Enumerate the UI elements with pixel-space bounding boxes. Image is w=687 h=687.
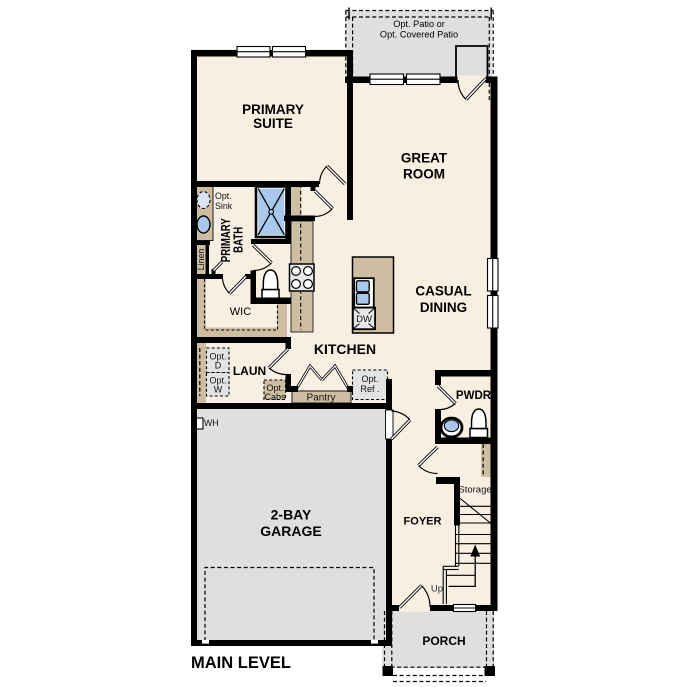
svg-text:Opt.: Opt. (215, 191, 232, 201)
svg-text:Linen: Linen (196, 249, 206, 271)
svg-text:DINING: DINING (420, 300, 467, 315)
svg-text:FOYER: FOYER (404, 516, 442, 528)
svg-text:KITCHEN: KITCHEN (314, 341, 376, 357)
svg-text:Pantry: Pantry (307, 393, 336, 404)
svg-text:LAUN: LAUN (233, 364, 266, 378)
svg-text:Cabs: Cabs (264, 392, 286, 402)
svg-text:PRIMARY: PRIMARY (242, 102, 304, 117)
svg-text:MAIN LEVEL: MAIN LEVEL (191, 654, 291, 672)
svg-text:BATH: BATH (232, 227, 246, 253)
svg-text:WIC: WIC (230, 306, 251, 318)
svg-text:2-BAY: 2-BAY (271, 507, 312, 523)
svg-text:PORCH: PORCH (422, 634, 465, 648)
svg-text:CASUAL: CASUAL (415, 284, 471, 299)
svg-text:W: W (214, 385, 223, 395)
svg-text:Ref .: Ref . (360, 384, 379, 394)
svg-text:WH: WH (204, 418, 219, 428)
svg-text:D: D (215, 361, 222, 371)
svg-text:Opt. Covered Patio: Opt. Covered Patio (380, 30, 458, 40)
svg-text:SUITE: SUITE (253, 116, 293, 131)
svg-text:GARAGE: GARAGE (260, 523, 321, 539)
svg-text:Opt.: Opt. (361, 374, 378, 384)
svg-text:PWDR: PWDR (456, 390, 492, 402)
svg-text:GREAT: GREAT (401, 151, 448, 166)
svg-text:DW: DW (356, 314, 372, 325)
svg-text:Opt. Patio or: Opt. Patio or (393, 19, 445, 29)
svg-text:ROOM: ROOM (403, 167, 445, 182)
svg-text:Sink: Sink (215, 201, 233, 211)
svg-text:Up: Up (431, 584, 443, 595)
svg-text:Storage: Storage (458, 485, 491, 496)
